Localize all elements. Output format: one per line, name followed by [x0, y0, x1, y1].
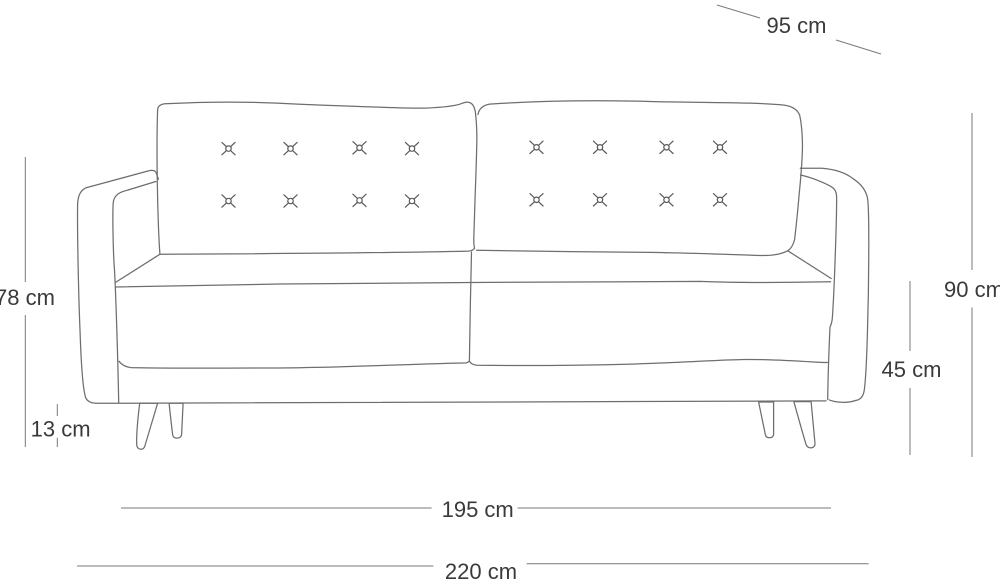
svg-text:220 cm: 220 cm	[445, 559, 517, 584]
svg-text:195 cm: 195 cm	[442, 497, 514, 522]
svg-text:95 cm: 95 cm	[767, 13, 827, 38]
svg-text:78 cm: 78 cm	[0, 285, 55, 310]
svg-text:90 cm: 90 cm	[944, 277, 1000, 302]
svg-text:13 cm: 13 cm	[31, 417, 91, 442]
svg-text:45 cm: 45 cm	[882, 357, 942, 382]
